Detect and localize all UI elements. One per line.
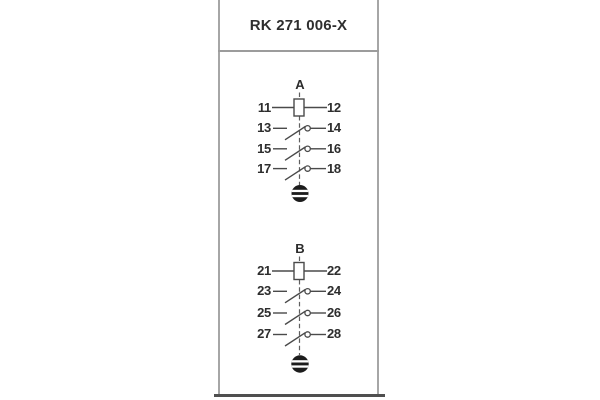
terminal-23: 23 — [240, 284, 271, 298]
terminal-24: 24 — [327, 284, 360, 298]
terminal-27: 27 — [240, 327, 271, 341]
terminal-22: 22 — [327, 264, 360, 278]
terminal-21: 21 — [240, 264, 271, 278]
schematic-page: RK 271 006-X A — [0, 0, 600, 400]
terminal-11: 11 — [240, 101, 271, 115]
terminal-12: 12 — [327, 101, 360, 115]
terminal-15: 15 — [240, 142, 271, 156]
title-section: RK 271 006-X — [218, 0, 379, 52]
slotted-disc-icon — [290, 185, 310, 202]
terminal-25: 25 — [240, 306, 271, 320]
slotted-disc-icon — [290, 355, 310, 372]
terminal-26: 26 — [327, 306, 360, 320]
contact-group-a: A — [240, 78, 360, 208]
terminal-28: 28 — [327, 327, 360, 341]
model-number: RK 271 006-X — [250, 17, 347, 34]
terminal-17: 17 — [240, 162, 271, 176]
terminal-16: 16 — [327, 142, 360, 156]
terminal-13: 13 — [240, 121, 271, 135]
coil-symbol — [272, 263, 327, 280]
contact-group-b: B — [240, 242, 360, 377]
terminal-18: 18 — [327, 162, 360, 176]
terminal-14: 14 — [327, 121, 360, 135]
bottom-edge-rule — [214, 394, 385, 397]
coil-symbol — [272, 99, 327, 116]
